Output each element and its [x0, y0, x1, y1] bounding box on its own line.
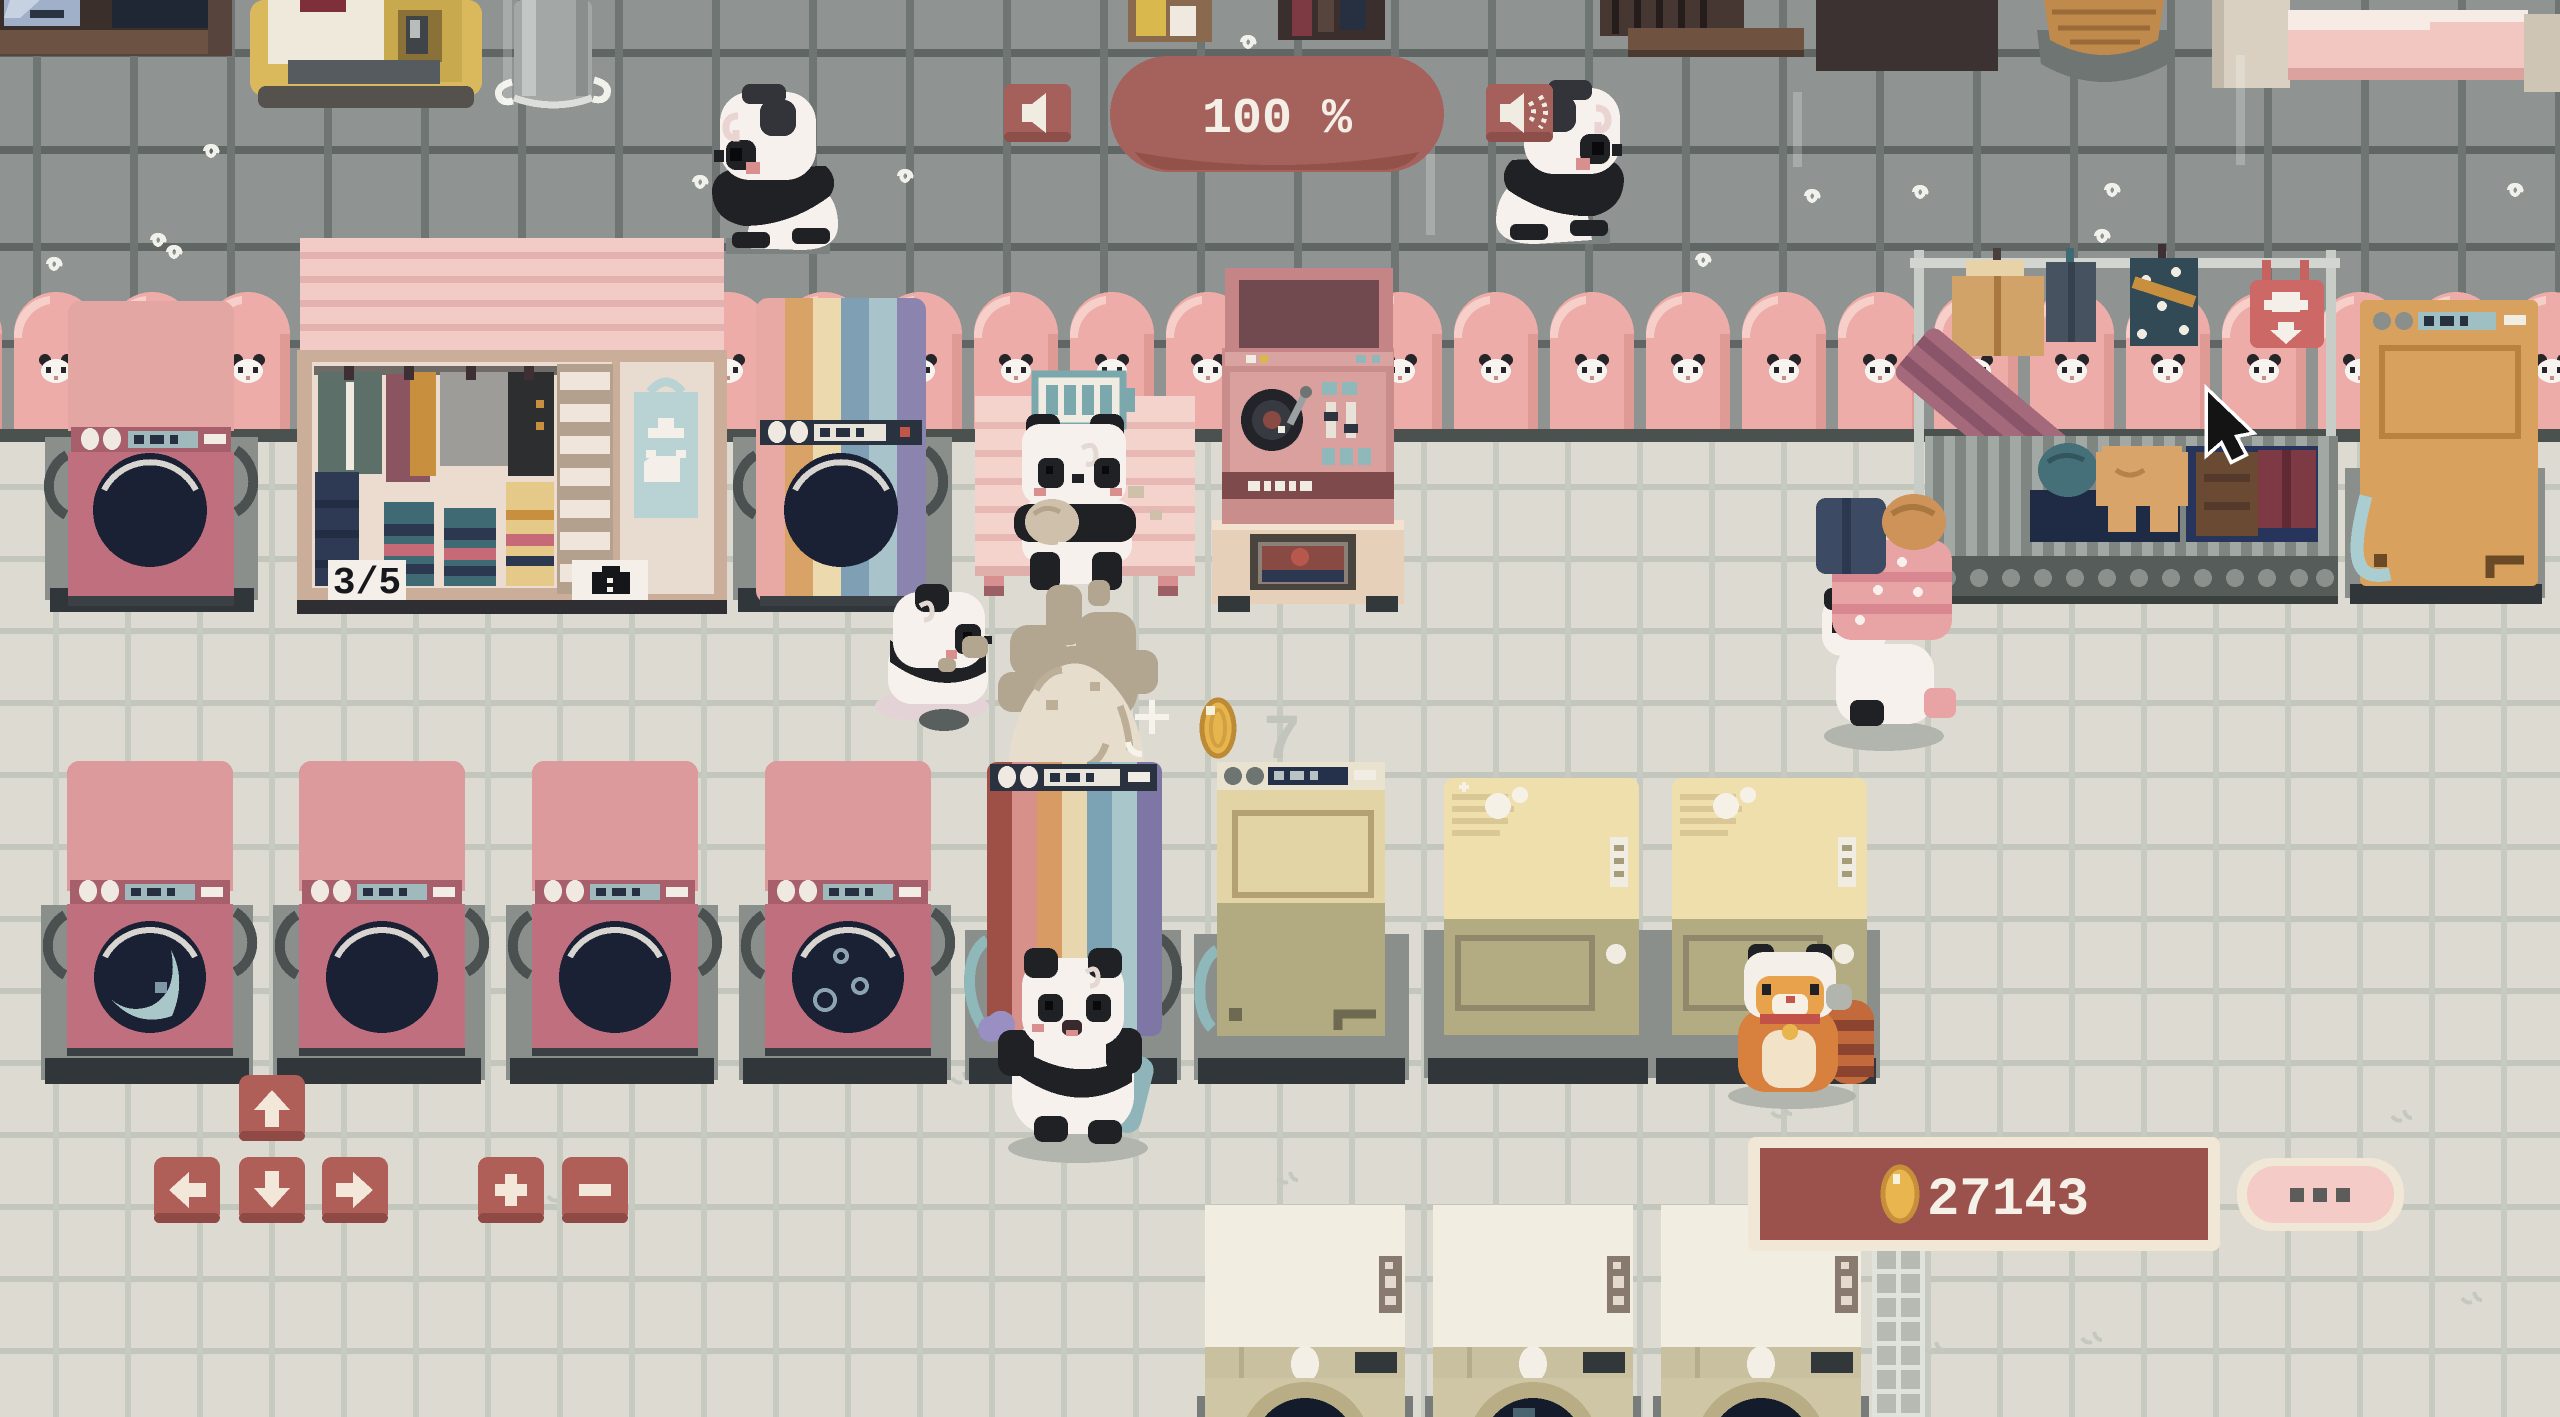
- svg-text:27143: 27143: [1927, 1170, 2089, 1231]
- svg-text:100 %: 100 %: [1202, 91, 1353, 148]
- svg-text:3/5: 3/5: [333, 562, 401, 605]
